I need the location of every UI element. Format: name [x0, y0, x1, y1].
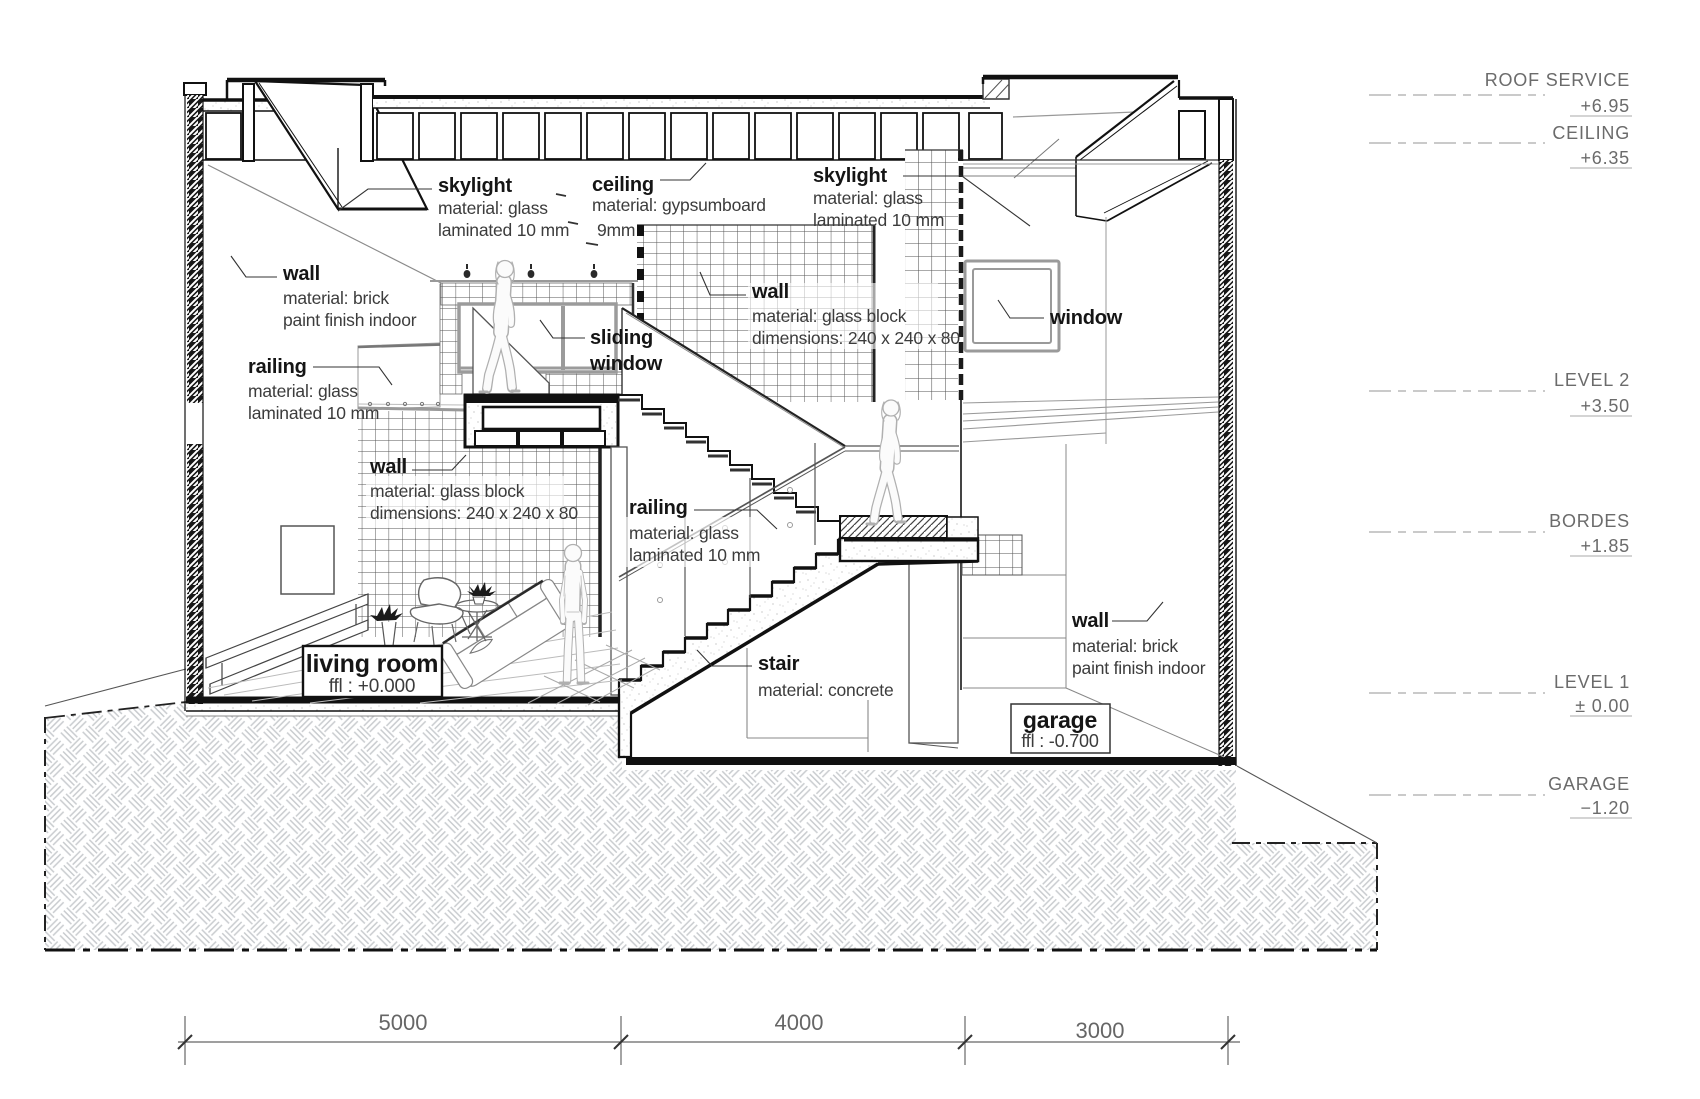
svg-text:+3.50: +3.50	[1580, 396, 1630, 416]
svg-text:window: window	[589, 353, 663, 375]
svg-text:material: concrete: material: concrete	[758, 680, 894, 700]
svg-text:material: gypsumboard: material: gypsumboard	[592, 195, 766, 215]
svg-text:laminated 10 mm: laminated 10 mm	[813, 210, 944, 230]
svg-text:+1.85: +1.85	[1580, 536, 1630, 556]
svg-text:stair: stair	[758, 653, 800, 675]
svg-text:dimensions: 240 x 240 x 80: dimensions: 240 x 240 x 80	[752, 328, 960, 348]
svg-text:railing: railing	[629, 497, 688, 519]
svg-text:BORDES: BORDES	[1549, 511, 1630, 531]
svg-text:ffl : +0.000: ffl : +0.000	[329, 676, 416, 697]
svg-text:wall: wall	[369, 456, 407, 478]
svg-text:material: glass block: material: glass block	[370, 481, 525, 501]
svg-text:GARAGE: GARAGE	[1548, 774, 1630, 794]
svg-text:ceiling: ceiling	[592, 174, 654, 196]
svg-text:living room: living room	[306, 650, 439, 678]
svg-text:skylight: skylight	[813, 165, 888, 187]
svg-text:skylight: skylight	[438, 175, 513, 197]
svg-text:ffl : -0.700: ffl : -0.700	[1021, 731, 1099, 751]
svg-text:laminated 10 mm: laminated 10 mm	[248, 403, 379, 423]
svg-text:laminated 10 mm: laminated 10 mm	[629, 545, 760, 565]
svg-text:material: glass: material: glass	[813, 188, 923, 208]
svg-text:paint finish indoor: paint finish indoor	[283, 310, 417, 330]
svg-text:+6.95: +6.95	[1580, 96, 1630, 116]
svg-text:3000: 3000	[1076, 1018, 1125, 1043]
svg-text:material: brick: material: brick	[1072, 636, 1178, 656]
svg-text:−1.20: −1.20	[1580, 798, 1630, 818]
svg-text:5000: 5000	[379, 1010, 428, 1035]
svg-text:4000: 4000	[775, 1010, 824, 1035]
svg-text:window: window	[1049, 307, 1123, 329]
svg-text:wall: wall	[1071, 610, 1109, 632]
svg-text:material: glass: material: glass	[248, 381, 358, 401]
svg-text:LEVEL 1: LEVEL 1	[1554, 672, 1630, 692]
svg-text:laminated 10 mm: laminated 10 mm	[438, 220, 569, 240]
svg-text:dimensions: 240 x 240 x 80: dimensions: 240 x 240 x 80	[370, 503, 578, 523]
svg-text:sliding: sliding	[590, 327, 653, 349]
svg-text:garage: garage	[1023, 707, 1097, 733]
svg-text:+6.35: +6.35	[1580, 148, 1630, 168]
svg-text:± 0.00: ± 0.00	[1575, 696, 1630, 716]
svg-text:CEILING: CEILING	[1552, 123, 1630, 143]
svg-text:LEVEL 2: LEVEL 2	[1554, 370, 1630, 390]
svg-text:material: brick: material: brick	[283, 288, 389, 308]
svg-text:wall: wall	[282, 263, 320, 285]
svg-text:9mm: 9mm	[597, 220, 635, 240]
svg-text:material: glass block: material: glass block	[752, 306, 907, 326]
svg-text:ROOF SERVICE: ROOF SERVICE	[1485, 70, 1630, 90]
svg-text:paint finish indoor: paint finish indoor	[1072, 658, 1206, 678]
svg-text:material: glass: material: glass	[629, 523, 739, 543]
svg-text:railing: railing	[248, 356, 307, 378]
svg-text:wall: wall	[751, 281, 789, 303]
svg-text:material: glass: material: glass	[438, 198, 548, 218]
